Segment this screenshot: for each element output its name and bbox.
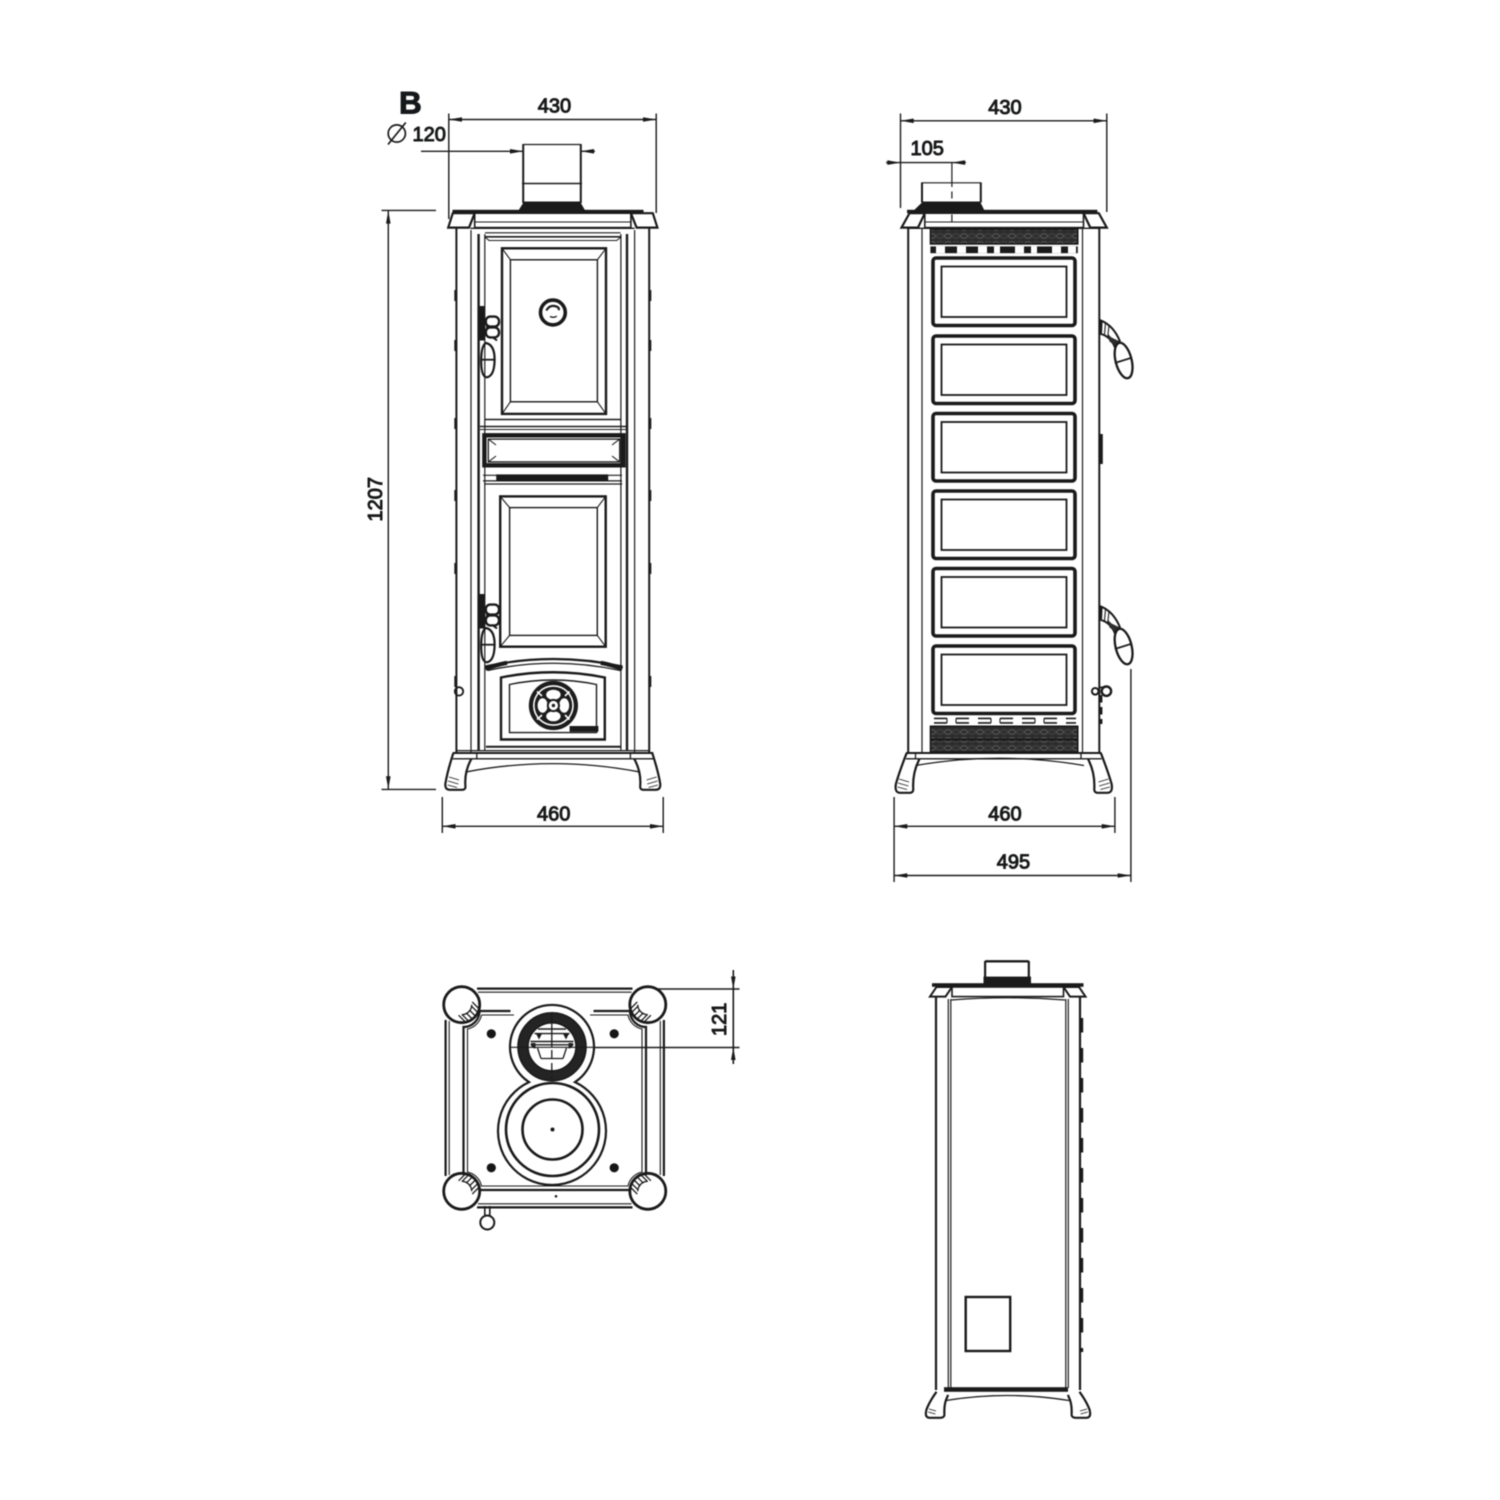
svg-text:B: B [399, 85, 422, 121]
svg-text:1207: 1207 [365, 477, 387, 522]
svg-text:460: 460 [537, 803, 570, 825]
svg-text:120: 120 [413, 124, 446, 146]
svg-text:121: 121 [709, 1003, 731, 1036]
svg-text:430: 430 [988, 97, 1021, 119]
svg-text:460: 460 [988, 803, 1021, 825]
svg-text:495: 495 [997, 852, 1030, 874]
svg-text:430: 430 [538, 96, 571, 118]
svg-text:105: 105 [911, 138, 944, 160]
